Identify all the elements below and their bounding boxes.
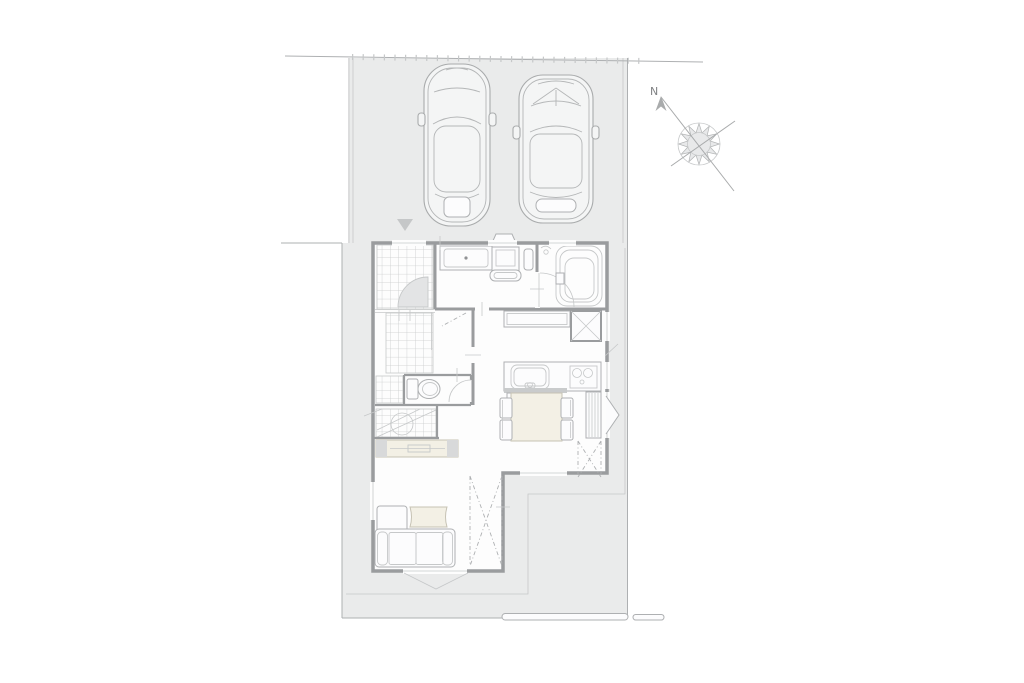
- stair-landing: [376, 376, 403, 403]
- counter-front-bar: [504, 388, 567, 393]
- north-label: N: [650, 85, 658, 98]
- fence-bar: [502, 614, 628, 621]
- coffee-table: [410, 507, 447, 527]
- car-mirror: [513, 126, 520, 139]
- crossed-box-closet: [571, 311, 601, 341]
- north-compass: N: [650, 85, 735, 191]
- dining-table: [511, 393, 562, 441]
- car-mirror: [489, 113, 496, 126]
- washbasin-counter: [440, 246, 492, 270]
- north-arrow-icon: [656, 96, 667, 111]
- storage-counter: [504, 311, 570, 327]
- dining-chair: [500, 420, 512, 440]
- car-1: [418, 64, 496, 226]
- tv-board: [376, 440, 458, 457]
- dining-set: [500, 393, 573, 441]
- car-mirror: [418, 113, 425, 126]
- compass-teeth: [679, 124, 720, 165]
- car-2: [513, 75, 599, 223]
- toilet: [407, 379, 440, 399]
- site-floor-plan: N: [0, 0, 1024, 683]
- dining-chair: [561, 398, 573, 418]
- dining-chair: [500, 398, 512, 418]
- car-mirror: [592, 126, 599, 139]
- dining-chair: [561, 420, 573, 440]
- compass-lines: [661, 97, 735, 191]
- louver-window: [586, 392, 601, 438]
- towel-rack: [524, 249, 533, 270]
- site-floor-plan-page: N: [0, 0, 1024, 683]
- fence-bar: [633, 615, 664, 621]
